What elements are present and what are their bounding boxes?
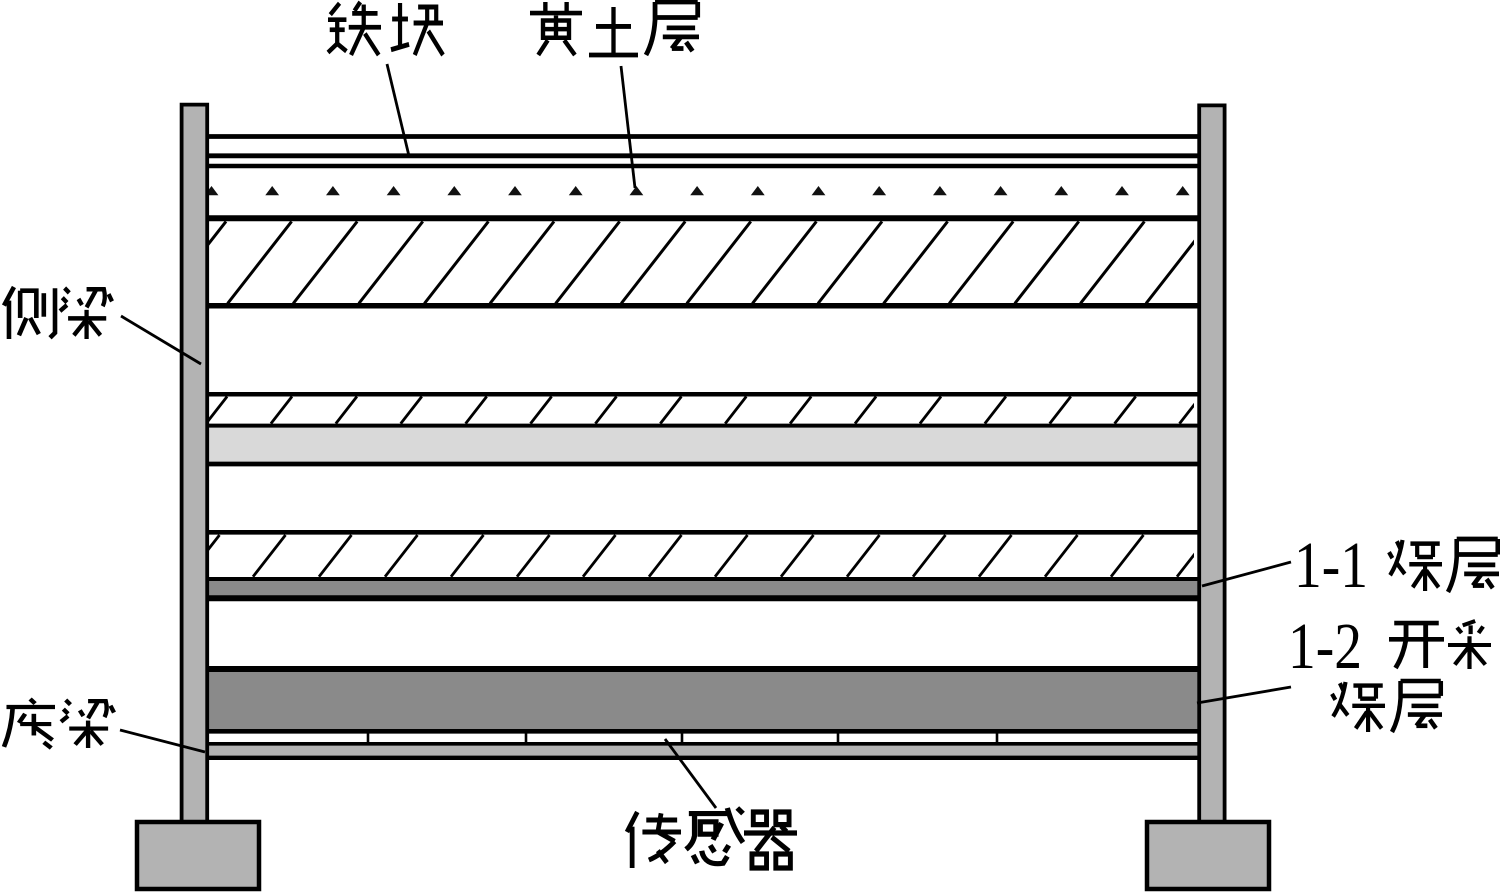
svg-text:1-1: 1-1: [1294, 529, 1368, 602]
svg-text:1-2: 1-2: [1288, 610, 1362, 683]
